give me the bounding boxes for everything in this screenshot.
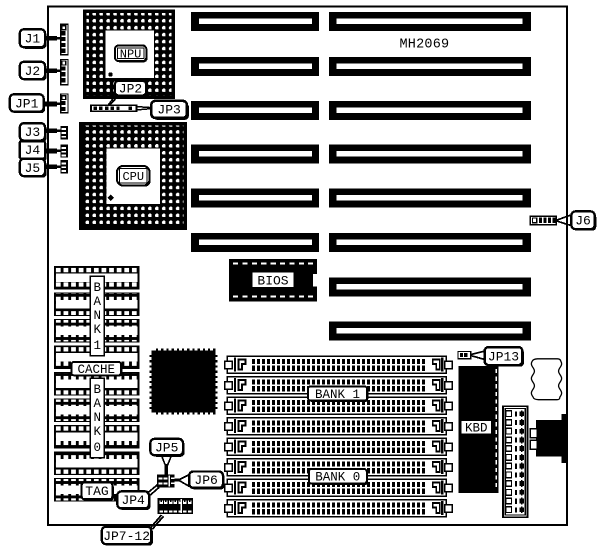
svg-text:J5: J5 bbox=[25, 161, 41, 176]
svg-text:A: A bbox=[93, 295, 101, 309]
svg-text:KBD: KBD bbox=[465, 422, 488, 436]
svg-text:A: A bbox=[93, 397, 101, 411]
svg-text:J3: J3 bbox=[25, 125, 41, 140]
svg-text:K: K bbox=[93, 425, 101, 439]
svg-text:TAG: TAG bbox=[85, 484, 108, 499]
svg-text:JP3: JP3 bbox=[157, 103, 180, 118]
svg-text:J1: J1 bbox=[25, 32, 41, 47]
svg-text:B: B bbox=[93, 281, 101, 295]
svg-text:BIOS: BIOS bbox=[257, 274, 288, 289]
svg-text:J2: J2 bbox=[25, 64, 41, 79]
svg-text:JP7-12: JP7-12 bbox=[103, 529, 150, 544]
svg-text:JP6: JP6 bbox=[194, 473, 217, 488]
svg-text:JP5: JP5 bbox=[155, 440, 178, 455]
svg-text:CPU: CPU bbox=[122, 170, 144, 184]
svg-text:J4: J4 bbox=[25, 143, 41, 158]
svg-text:B: B bbox=[93, 383, 101, 397]
svg-text:JP4: JP4 bbox=[121, 493, 145, 508]
svg-text:JP13: JP13 bbox=[488, 349, 519, 364]
svg-text:N: N bbox=[93, 411, 101, 425]
svg-text:J6: J6 bbox=[575, 214, 591, 229]
svg-text:N: N bbox=[93, 309, 101, 323]
svg-text:BANK 1: BANK 1 bbox=[315, 388, 360, 402]
svg-text:JP2: JP2 bbox=[119, 81, 142, 96]
svg-text:0: 0 bbox=[93, 441, 101, 455]
svg-text:JP1: JP1 bbox=[15, 96, 39, 111]
svg-text:CACHE: CACHE bbox=[77, 363, 115, 377]
svg-text:1: 1 bbox=[93, 339, 101, 353]
svg-text:K: K bbox=[93, 323, 101, 337]
svg-text:NPU: NPU bbox=[120, 48, 142, 62]
svg-text:BANK 0: BANK 0 bbox=[315, 471, 360, 485]
svg-text:MH2069: MH2069 bbox=[400, 38, 450, 53]
